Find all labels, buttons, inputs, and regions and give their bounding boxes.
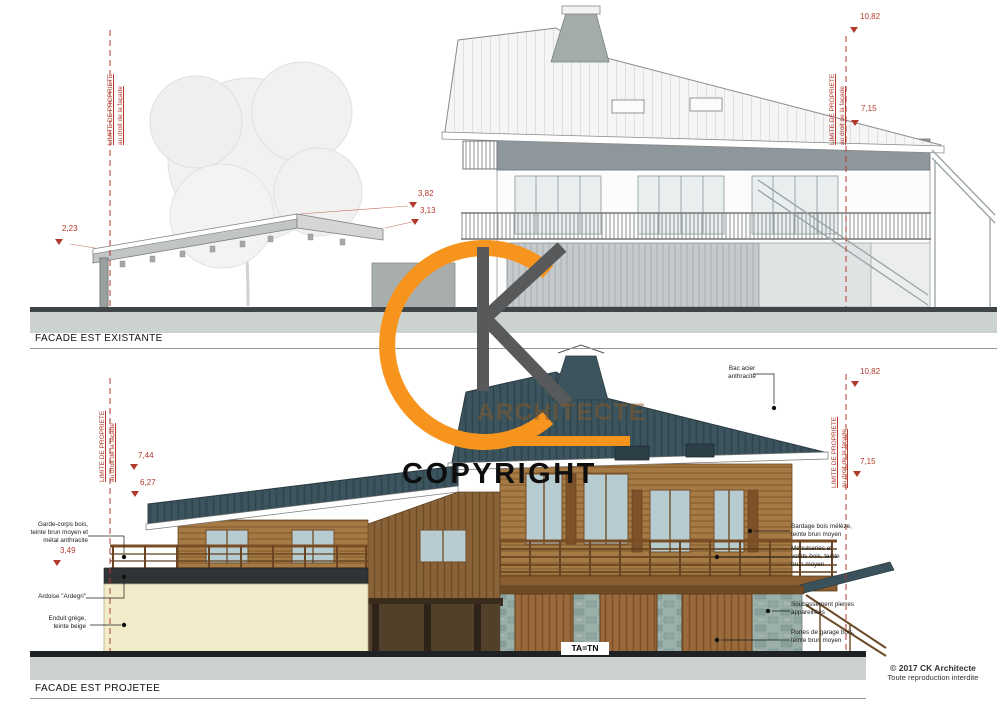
dim-marker	[409, 202, 417, 208]
dim-marker	[851, 381, 859, 387]
label-ardoise: Ardoise "Ardegri"	[34, 593, 86, 601]
label-bac-acier: Bac acier anthracite	[720, 365, 764, 381]
ground-level-label: TA=TN	[561, 642, 609, 655]
existing-left-balcony	[463, 141, 497, 169]
property-limit-label-bottom-left: LIMITE DE PROPRIETEau droit de la façade	[98, 411, 119, 482]
dim-marker	[53, 560, 61, 566]
carport	[93, 214, 455, 311]
chimney	[551, 6, 609, 62]
architectural-sheet: LIMITE DE PROPRIETEau droit de la façade…	[0, 0, 1000, 707]
existing-facade-drawing	[30, 6, 997, 333]
label-bardage: Bardage bois mélèze, teinte brun moyen	[791, 523, 855, 539]
label-menuiseries: Menuiseries et volets bois, teinte brun …	[791, 545, 849, 570]
label-portes-garage: Portes de garage bois, teinte brun moyen	[791, 629, 855, 645]
dim-marker	[131, 491, 139, 497]
dim-10-82-bottom: 10,82	[860, 368, 880, 376]
reproduction-notice: Toute reproduction interdite	[872, 673, 994, 682]
label-garde-corps: Garde-corps bois, teinte brun moyen et m…	[28, 521, 88, 546]
dim-7-15-top: 7,15	[861, 105, 877, 113]
property-limit-label-top-left: LIMITE DE PROPRIETEau droit de la façade	[106, 74, 127, 145]
dim-6-27: 6,27	[140, 479, 156, 487]
label-soubassement: Soubassement pierres appareillées	[791, 601, 855, 617]
property-limit-label-top-right: LIMITE DE PROPRIETEau droit de la façade	[828, 74, 849, 145]
projected-garage-level	[498, 586, 804, 653]
projected-ground-band	[30, 657, 866, 680]
existing-balcony-railing	[461, 213, 931, 239]
label-enduit: Enduit grège, teinte beige	[34, 615, 86, 631]
existing-ground-band	[30, 312, 997, 333]
dim-marker	[55, 239, 63, 245]
existing-facade-title: FACADE EST EXISTANTE	[35, 333, 163, 344]
projected-title-rule	[30, 698, 866, 699]
dim-3-13: 3,13	[420, 207, 436, 215]
existing-house	[442, 6, 995, 307]
dim-7-15-bottom: 7,15	[860, 458, 876, 466]
watermark-copyright-text: COPYRIGHT	[402, 458, 597, 491]
projected-facade-drawing	[30, 345, 894, 680]
tree-sketch	[150, 62, 362, 306]
dim-3-49: 3,49	[60, 547, 76, 555]
watermark-architecte-text: ARCHITECTE	[477, 399, 647, 427]
dim-marker	[853, 471, 861, 477]
dim-marker	[130, 464, 138, 470]
existing-ground-line	[30, 307, 997, 312]
copyright-line: © 2017 CK Architecte	[872, 663, 994, 673]
projected-facade-title: FACADE EST PROJETEE	[35, 683, 160, 694]
property-limit-label-bottom-right: LIMITE DE PROPRIETEau droit de la façade	[830, 417, 851, 488]
dim-10-82-top: 10,82	[860, 13, 880, 21]
dim-3-82: 3,82	[418, 190, 434, 198]
dim-7-44: 7,44	[138, 452, 154, 460]
dim-marker	[411, 219, 419, 225]
dim-2-23: 2,23	[62, 225, 78, 233]
projected-ground-line	[30, 651, 866, 657]
projected-mid-section	[365, 492, 503, 653]
existing-title-rule	[30, 348, 997, 349]
dim-marker	[850, 27, 858, 33]
sheet-copyright: © 2017 CK Architecte Toute reproduction …	[872, 663, 994, 682]
dim-marker	[851, 120, 859, 126]
